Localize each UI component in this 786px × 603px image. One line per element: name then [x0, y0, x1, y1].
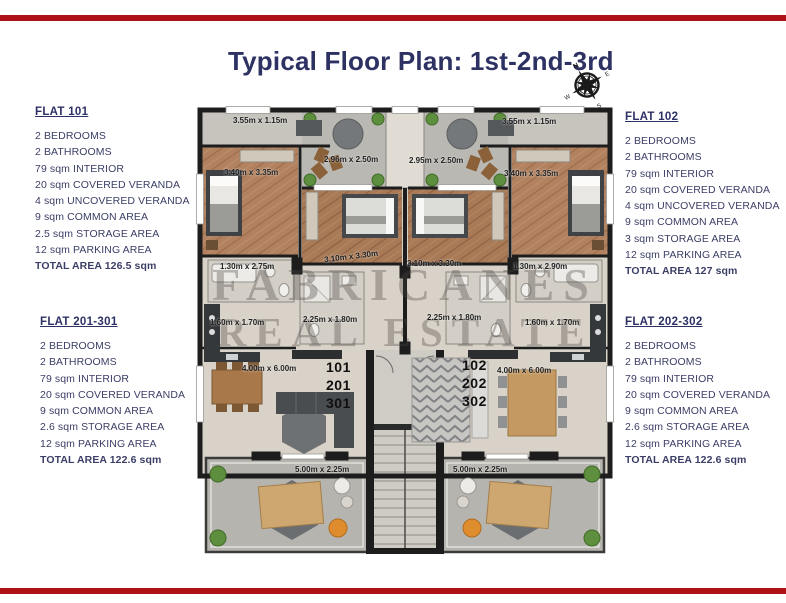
flat-spec-line: 3 sqm STORAGE AREA	[625, 231, 786, 247]
dim-label-bedroom2-right: 3.10m x 3.30m	[407, 259, 461, 268]
unit-number: 302	[462, 392, 487, 410]
flat-spec-line: 12 sqm PARKING AREA	[625, 436, 786, 452]
flat-202-302-title: FLAT 202-302	[625, 316, 786, 328]
dim-label-living-right: 4.00m x 6.00m	[497, 366, 551, 375]
flat-spec-line: 4 sqm UNCOVERED VERANDA	[625, 198, 786, 214]
flat-spec-line: 2 BEDROOMS	[625, 133, 786, 149]
dim-label-veranda-left: 5.00m x 2.25m	[295, 465, 349, 474]
dim-label-bedroom1-right: 3.40m x 3.35m	[504, 169, 558, 178]
dim-label-bath-left: 1.30m x 2.75m	[220, 262, 274, 271]
flat-spec-line: 2.6 sqm STORAGE AREA	[625, 419, 786, 435]
flat-spec-line: 2 BATHROOMS	[625, 354, 786, 370]
unit-numbers-left: 101 201 301	[326, 358, 351, 412]
flat-102-title: FLAT 102	[625, 111, 786, 123]
unit-number: 201	[326, 376, 351, 394]
dim-label-wc-left: 1.60m x 1.70m	[210, 318, 264, 327]
flat-202-302-info: FLAT 202-302 2 BEDROOMS 2 BATHROOMS 79 s…	[625, 316, 786, 468]
dim-label-terrace-left: 2.96m x 2.50m	[324, 155, 378, 164]
dim-label-balcony-tl: 3.55m x 1.15m	[233, 116, 287, 125]
dim-label-veranda-right: 5.00m x 2.25m	[453, 465, 507, 474]
compass-w-label: W	[564, 94, 572, 102]
unit-numbers-right: 102 202 302	[462, 356, 487, 410]
flat-spec-line: 79 sqm INTERIOR	[625, 166, 786, 182]
unit-number: 101	[326, 358, 351, 376]
dim-label-bath-right: 1.30m x 2.90m	[513, 262, 567, 271]
flat-spec-line: 12 sqm PARKING AREA	[625, 247, 786, 263]
flat-total-line: TOTAL AREA 122.6 sqm	[625, 452, 786, 468]
flat-spec-line: 9 sqm COMMON AREA	[625, 214, 786, 230]
compass-e-label: E	[604, 71, 610, 78]
flat-spec-line: 2 BATHROOMS	[625, 149, 786, 165]
unit-number: 301	[326, 394, 351, 412]
floor-plan: FABRICANES REAL ESTATE 3.55m x 1.15m 2.9…	[196, 104, 614, 560]
flat-spec-line: 20 sqm COVERED VERANDA	[625, 182, 786, 198]
dim-label-bedroom1-left: 3.40m x 3.35m	[224, 168, 278, 177]
bottom-rule	[0, 588, 786, 594]
flat-spec-line: 20 sqm COVERED VERANDA	[625, 387, 786, 403]
unit-number: 202	[462, 374, 487, 392]
dim-label-wc-right: 1.60m x 1.70m	[525, 318, 579, 327]
flat-spec-line: 9 sqm COMMON AREA	[625, 403, 786, 419]
flat-spec-line: 2 BEDROOMS	[625, 338, 786, 354]
dim-label-balcony-tr: 3.55m x 1.15m	[502, 117, 556, 126]
flat-102-info: FLAT 102 2 BEDROOMS 2 BATHROOMS 79 sqm I…	[625, 111, 786, 280]
top-rule	[0, 15, 786, 21]
flat-spec-line: 79 sqm INTERIOR	[625, 371, 786, 387]
dim-label-bath2-right: 2.25m x 1.80m	[427, 313, 481, 322]
dim-label-bath2-left: 2.25m x 1.80m	[303, 315, 357, 324]
dim-label-living-left: 4.00m x 6.00m	[242, 364, 296, 373]
dim-label-terrace-right: 2.95m x 2.50m	[409, 156, 463, 165]
compass-n-label: N	[572, 62, 580, 71]
unit-number: 102	[462, 356, 487, 374]
flat-total-line: TOTAL AREA 127 sqm	[625, 263, 786, 279]
